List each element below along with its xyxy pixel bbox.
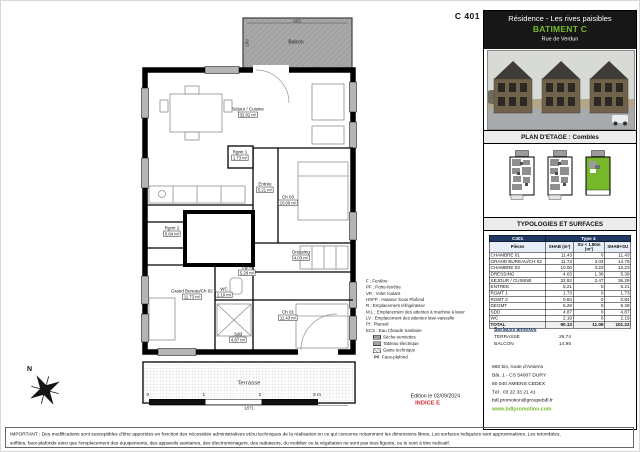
room-label: Séjour / Cuisine32.82 m² — [232, 106, 264, 118]
promoter-block: BDL PROMOTION 660 bis, route d'AmiensBât… — [488, 363, 633, 425]
false-ceiling-icon: ⋈ — [373, 355, 380, 359]
room-area: 1.73 m² — [231, 155, 248, 161]
legend-symbol-text: Faux-plafond — [382, 354, 408, 359]
legend-symbol-text: Sèche-serviettes — [383, 334, 416, 339]
room-area: 0.84 m² — [163, 231, 180, 237]
contact-line: 660 bis, route d'Amiens — [492, 363, 584, 371]
scale-bar: 0123 m — [148, 392, 324, 414]
room-label: Entrée5.21 m² — [256, 181, 273, 193]
room-name: Dgmt — [242, 264, 253, 269]
floor-plan-title: PLAN D'ETAGE : Combles — [484, 131, 636, 143]
room-area: 10.00 m² — [278, 200, 298, 206]
room-label: Dgmt5.28 m² — [238, 264, 255, 276]
dimension-balcony-width: 603 — [293, 19, 301, 24]
legend-abbreviation: ECS : Eau Chaude Sanitaire — [366, 327, 472, 333]
contact-line: bdl.promotion@groupebdl.fr — [492, 397, 584, 405]
disclaimer-line-1: IMPORTANT : Des modifications sont susce… — [10, 430, 632, 439]
floor-thumbnail-2 — [547, 150, 573, 200]
legend-symbol: Gaine technique — [373, 347, 472, 353]
room-label: Ch 0310.00 m² — [278, 194, 298, 206]
room-label: Rgmt 20.84 m² — [163, 225, 180, 237]
room-name: Ch 01 — [282, 309, 294, 314]
room-name: Dressing — [292, 249, 310, 254]
table-column-header: SHAB (m²) — [546, 242, 573, 253]
edition-block: Edition le 02/09/2024 INDICE E — [310, 393, 470, 419]
room-cell: GRAND BUREAU/CH 02 — [489, 259, 546, 265]
legend-symbol: Tableau électrique — [373, 341, 472, 347]
electrical-panel-icon — [373, 342, 381, 347]
scale-tick: 2 — [259, 392, 262, 398]
floor-plan-title-bar: PLAN D'ETAGE : Combles — [484, 130, 636, 144]
annex-row: BALCON14.95 — [494, 341, 634, 347]
floor-thumbnails — [484, 144, 636, 214]
room-name: Séjour / Cuisine — [232, 106, 264, 111]
scale-tick: 1 — [203, 392, 206, 398]
room-label: Ch 0111.43 m² — [278, 309, 297, 321]
room-name: WC — [220, 286, 228, 291]
room-area: 4.03 m² — [292, 255, 309, 261]
unit-number: C 401 — [430, 11, 480, 21]
disclaimer: IMPORTANT : Des modifications sont susce… — [5, 427, 634, 448]
floor-thumbnail-3-selected — [585, 150, 611, 200]
contact-line: Bât. 1 - CS 54007 DURY — [492, 371, 584, 379]
technical-duct-icon — [373, 348, 381, 353]
room-area: 11.73 m² — [182, 294, 201, 300]
surfaces-table: C401Type 4PiècesSHAB (m²)SU < 1.80m (m²)… — [489, 235, 631, 328]
scale-tick: 0 — [147, 392, 150, 398]
info-panel: Résidence - Les rives paisibles BATIMENT… — [483, 10, 637, 430]
scale-bar-segments — [149, 399, 318, 405]
render-buildings — [494, 61, 628, 113]
annex-name: TERRASSE — [494, 334, 559, 340]
room-label: Grand Bureau/Ch 0211.73 m² — [171, 288, 213, 300]
plan-legend: F : FenêtrePF : Porte-fenêtreVR : Volet … — [366, 278, 471, 368]
room-area: 5.21 m² — [256, 187, 273, 193]
street-name: Rue de Verdun — [484, 36, 636, 42]
room-area: 11.43 m² — [278, 315, 297, 321]
room-area: 5.28 m² — [238, 270, 255, 276]
panel-header: Résidence - Les rives paisibles BATIMENT… — [484, 11, 636, 49]
typologies-title: TYPOLOGIES ET SURFACES — [484, 218, 636, 230]
residence-title: Résidence - Les rives paisibles — [484, 15, 636, 24]
annex-surfaces: Surfaces annexes TERRASSE26.74BALCON14.9… — [494, 327, 634, 361]
stair-void — [185, 212, 253, 265]
building-name: BATIMENT C — [484, 25, 636, 35]
annex-title: Surfaces annexes — [494, 327, 634, 333]
room-name: Grand Bureau/Ch 02 — [171, 288, 213, 293]
terrace-label: Terrasse — [237, 380, 260, 386]
table-column-header: SU < 1.80m (m²) — [573, 242, 605, 253]
room-label: Rgmt 11.73 m² — [231, 149, 248, 161]
annex-name: BALCON — [494, 341, 559, 347]
annex-value: 14.95 — [559, 341, 571, 347]
balcony-label: Balcon — [288, 39, 303, 45]
disclaimer-line-2: soffites, faux-plafonds ainsi que l'empl… — [10, 439, 632, 448]
website-link: www.bdlpromotion.com — [492, 406, 584, 412]
room-name: Rgmt 1 — [233, 149, 248, 154]
building-render-image — [487, 50, 635, 130]
compass-north-label: N — [27, 366, 32, 373]
legend-symbol-text: Gaine technique — [383, 348, 415, 353]
typologies-title-bar: TYPOLOGIES ET SURFACES — [484, 217, 636, 231]
compass-icon — [22, 367, 68, 413]
contact-info: 660 bis, route d'AmiensBât. 1 - CS 54007… — [492, 363, 640, 425]
table-column-header: SHAB+SU — [605, 242, 631, 253]
table-columns-row: PiècesSHAB (m²)SU < 1.80m (m²)SHAB+SU — [489, 242, 631, 253]
room-name: Ch 03 — [282, 194, 294, 199]
contact-line: 80 040 AMIENS CEDEX — [492, 380, 584, 388]
annex-row: TERRASSE26.74 — [494, 334, 634, 340]
room-area: 32.82 m² — [238, 112, 258, 118]
table-column-header: Pièces — [489, 242, 546, 253]
room-area: 4.87 m² — [229, 337, 246, 343]
surfaces-table-wrap: C401Type 4PiècesSHAB (m²)SU < 1.80m (m²)… — [489, 235, 635, 319]
plan-sheet: C 401 Séjour / Cuisine32.82 m²Rgmt 11.73… — [0, 0, 640, 452]
room-name: Sdd — [234, 331, 242, 336]
room-label: Dressing4.03 m² — [292, 249, 310, 261]
dimension-balcony-depth: 169 — [245, 39, 250, 47]
room-label: Sdd4.87 m² — [229, 331, 246, 343]
contact-line: Tél : 03 22 33 21 41 — [492, 388, 584, 396]
room-area: 2.19 m² — [215, 292, 232, 298]
legend-symbol-text: Tableau électrique — [383, 341, 419, 346]
annex-value: 26.74 — [559, 334, 571, 340]
legend-symbol: Sèche-serviettes — [373, 334, 472, 340]
edition-date: Edition le 02/09/2024 — [310, 393, 470, 399]
room-name: Entrée — [258, 181, 271, 186]
room-name: Rgmt 2 — [165, 225, 180, 230]
indice-label: INDICE E — [310, 400, 470, 406]
floor-thumbnail-1 — [509, 150, 535, 200]
room-label: WC2.19 m² — [215, 286, 232, 298]
towel-radiator-icon — [373, 335, 381, 340]
legend-symbol: ⋈Faux-plafond — [373, 354, 472, 360]
